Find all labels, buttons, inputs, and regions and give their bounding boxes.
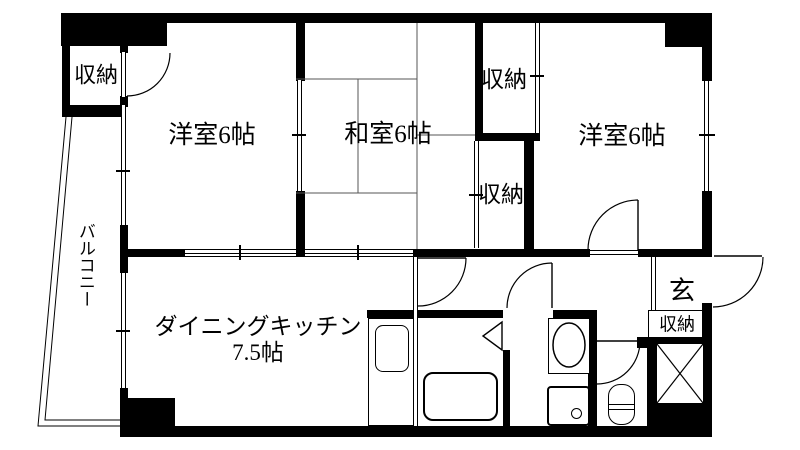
- wall-closet-tl-left: [62, 40, 70, 106]
- entrance-step-line: [651, 257, 656, 310]
- floor-plan: バルコニー 収納 洋室6帖 和室6帖 洋室6帖 収納 収納 ダイニングキッチン …: [0, 0, 800, 450]
- room-label-closet-lower: 収納: [478, 183, 524, 207]
- window-tick: [116, 170, 130, 172]
- door-swing-arc: [713, 257, 763, 307]
- wall-right-upper: [702, 23, 712, 81]
- door-swing-arc: [507, 263, 552, 308]
- room-label-closet-upper: 収納: [481, 68, 527, 92]
- toilet-seat-line: [609, 404, 634, 405]
- pipe-shaft-box: [656, 343, 704, 404]
- room-label-balcony: バルコニー: [76, 223, 94, 308]
- wall-corridor-top-right: [638, 249, 712, 257]
- wall-upper-closet-bottom: [475, 133, 540, 141]
- washing-machine-pan-icon: [547, 386, 590, 426]
- right-wall-window: [704, 81, 709, 191]
- wall-bottom: [120, 426, 712, 437]
- door-swing-arc: [127, 53, 170, 96]
- room-label-entrance: 玄: [669, 277, 695, 304]
- door-swing-arc: [418, 258, 466, 306]
- washbasin-counter: [548, 318, 590, 374]
- window-tick: [116, 330, 130, 332]
- sliding-door-japanese-dk: [305, 249, 413, 257]
- western-right-door-threshold: [590, 250, 638, 255]
- wall-dk-left-seg: [123, 249, 185, 257]
- room-label-closet-top-left: 収納: [74, 63, 118, 86]
- door-swing-arc: [588, 200, 638, 250]
- toilet-seat-line: [609, 409, 634, 410]
- window-tick: [292, 134, 306, 136]
- washing-machine-drain-icon: [571, 408, 582, 419]
- wall-bath-wash-partition: [503, 350, 510, 427]
- wall-washroom-top: [553, 310, 593, 318]
- upper-closet-sliding-door: [535, 23, 540, 133]
- door-swing-arc: [597, 341, 640, 384]
- balcony-window-upper: [121, 105, 126, 225]
- bathtub-icon: [423, 372, 498, 421]
- room-label-dining-kitchen: ダイニングキッチン: [155, 315, 362, 339]
- wall-corridor-top-left: [413, 249, 590, 257]
- wall-top-left-block: [61, 13, 167, 46]
- window-tick: [530, 75, 544, 77]
- wall-lower-closet-right: [524, 141, 534, 249]
- room-label-dining-kitchen-size: 7.5帖: [232, 341, 284, 365]
- wall-room-divider-upper: [296, 23, 305, 81]
- folding-door-icon: [483, 322, 502, 350]
- window-tick: [239, 245, 241, 260]
- room-label-western-right: 洋室6帖: [578, 124, 666, 150]
- window-tick: [699, 134, 715, 136]
- wall-shaft-bottom-block: [657, 403, 712, 427]
- wall-right-middle: [702, 191, 712, 257]
- room-label-closet-entrance: 収納: [659, 316, 695, 335]
- room-label-japanese: 和室6帖: [344, 122, 432, 148]
- kitchen-sink-icon: [375, 325, 409, 372]
- wall-bath-top: [367, 310, 503, 318]
- wall-closet-tl-bottom: [62, 105, 126, 117]
- wall-bottom-left-block: [120, 398, 175, 428]
- window-tick: [357, 245, 359, 260]
- wall-left-stub-d: [120, 388, 128, 428]
- room-label-western-left: 洋室6帖: [168, 123, 256, 149]
- closet-tl-door: [121, 52, 126, 97]
- wall-room-divider-lower: [296, 191, 305, 257]
